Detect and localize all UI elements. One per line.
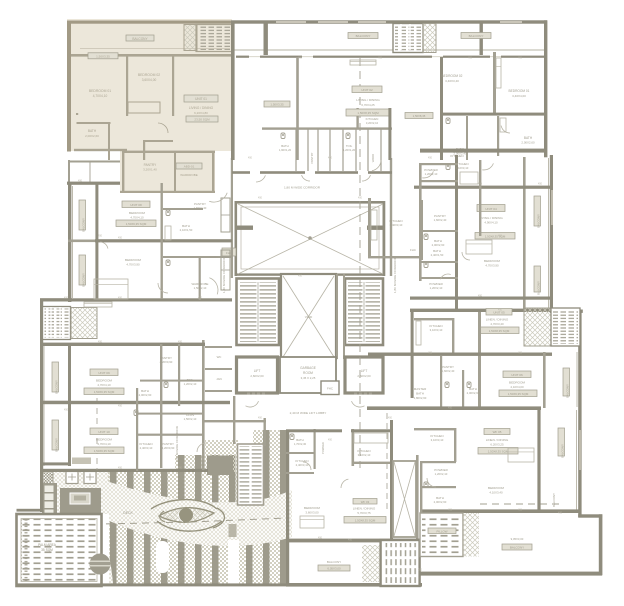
svg-text:BEDROOM: BEDROOM [484, 259, 500, 263]
svg-text:2,40X3,10: 2,40X3,10 [390, 223, 403, 227]
svg-text:BALCONY: BALCONY [54, 438, 58, 452]
svg-text:450: 450 [118, 297, 123, 300]
svg-text:BEDROOM: BEDROOM [96, 438, 112, 442]
svg-text:BATH: BATH [88, 129, 97, 133]
svg-text:DECK: DECK [123, 511, 133, 515]
svg-text:1,50X3,35: 1,50X3,35 [270, 103, 284, 107]
svg-text:450: 450 [518, 57, 523, 60]
svg-text:450: 450 [498, 235, 503, 238]
svg-text:450: 450 [318, 537, 323, 540]
svg-text:BEDROOM: BEDROOM [125, 258, 141, 262]
svg-text:4,70X3,40: 4,70X3,40 [490, 322, 504, 326]
svg-text:BEDROOM: BEDROOM [96, 379, 112, 383]
svg-text:KITCHEN: KITCHEN [366, 117, 379, 121]
svg-text:BALCONY: BALCONY [565, 384, 569, 398]
svg-text:LINEN / DINING: LINEN / DINING [353, 507, 376, 511]
svg-text:BEDROOM 01: BEDROOM 01 [89, 89, 111, 93]
svg-text:450: 450 [64, 297, 69, 300]
svg-text:WARD: WARD [371, 154, 375, 162]
svg-text:450: 450 [558, 512, 563, 515]
svg-text:BALCONY: BALCONY [81, 218, 85, 232]
svg-text:2,00X2,60: 2,00X2,60 [139, 393, 152, 397]
svg-text:1,20X2,10: 1,20X2,10 [425, 172, 438, 176]
svg-text:UNIT 10: UNIT 10 [98, 430, 110, 434]
svg-text:4,70X4,10: 4,70X4,10 [97, 442, 111, 446]
svg-text:1,80 M WIDE CORRIDOR: 1,80 M WIDE CORRIDOR [284, 186, 321, 190]
svg-text:UNIT 01: UNIT 01 [195, 97, 207, 101]
svg-text:3,10X2,10: 3,10X2,10 [358, 453, 371, 457]
svg-text:BEDROOM: BEDROOM [129, 211, 145, 215]
svg-text:1,80 M WIDE CORRIDOR: 1,80 M WIDE CORRIDOR [175, 425, 179, 462]
svg-text:1,80X2,60: 1,80X2,60 [414, 396, 427, 400]
svg-text:VOID: VOID [305, 315, 313, 319]
svg-text:LIFT: LIFT [254, 369, 261, 373]
svg-text:WC: WC [217, 355, 222, 359]
svg-text:450: 450 [98, 235, 103, 238]
svg-text:3,10X3,10: 3,10X3,10 [456, 166, 469, 170]
svg-text:1,50X2,10: 1,50X2,10 [184, 417, 197, 421]
svg-text:2,00X2,60: 2,00X2,60 [85, 134, 99, 138]
svg-text:450: 450 [118, 405, 123, 408]
svg-text:450: 450 [518, 352, 523, 355]
svg-text:PANTRY: PANTRY [310, 152, 314, 163]
svg-text:3,60X3,00: 3,60X3,00 [305, 511, 319, 515]
svg-text:450: 450 [118, 467, 123, 470]
svg-text:2,00X2,60: 2,00X2,60 [467, 391, 480, 395]
svg-text:2,00X2,60: 2,00X2,60 [432, 243, 445, 247]
svg-text:6,05X3,00: 6,05X3,00 [327, 567, 341, 571]
svg-text:BALCONY: BALCONY [469, 34, 484, 38]
svg-text:BATH: BATH [296, 438, 304, 442]
svg-text:MASTER: MASTER [414, 387, 427, 391]
svg-text:LIVING / DINING: LIVING / DINING [479, 216, 503, 220]
svg-text:WF 03: WF 03 [361, 500, 370, 504]
svg-text:450: 450 [448, 509, 453, 512]
svg-text:450: 450 [538, 183, 543, 186]
svg-text:FHC: FHC [410, 248, 416, 252]
svg-text:450: 450 [428, 157, 433, 160]
svg-text:2,10X1,50: 2,10X1,50 [180, 228, 193, 232]
svg-text:450: 450 [388, 417, 393, 420]
svg-text:2,40X1,50: 2,40X1,50 [431, 253, 444, 257]
svg-text:450: 450 [248, 157, 253, 160]
svg-text:450: 450 [378, 57, 383, 60]
svg-text:450: 450 [518, 509, 523, 512]
svg-text:4,10X4,00: 4,10X4,00 [510, 385, 524, 389]
svg-text:UNIT 04: UNIT 04 [485, 207, 497, 211]
svg-text:JAN: JAN [216, 377, 221, 381]
svg-text:1,50X8,35 SQM: 1,50X8,35 SQM [488, 449, 509, 453]
svg-text:450: 450 [178, 467, 183, 470]
svg-text:PILLOW: PILLOW [437, 529, 448, 533]
svg-text:BATH: BATH [524, 136, 533, 140]
svg-text:2,00X2,60: 2,00X2,60 [521, 141, 535, 145]
svg-text:1,50X6,35 SQM: 1,50X6,35 SQM [126, 222, 147, 226]
svg-text:23,50 SQM: 23,50 SQM [194, 118, 210, 122]
svg-text:BALCONY: BALCONY [327, 560, 341, 564]
svg-text:450: 450 [468, 57, 473, 60]
svg-text:450: 450 [478, 183, 483, 186]
svg-text:4,70X3,90: 4,70X3,90 [126, 263, 140, 267]
svg-text:450: 450 [428, 352, 433, 355]
svg-text:1,50X8,35: 1,50X8,35 [413, 114, 426, 118]
svg-text:450: 450 [78, 180, 83, 183]
svg-text:1,50X6,35 SQM: 1,50X6,35 SQM [94, 449, 115, 453]
svg-text:TOIL: TOIL [346, 144, 353, 148]
svg-text:BALCONY: BALCONY [560, 444, 564, 458]
svg-text:1,80 M WIDE CORRIDOR: 1,80 M WIDE CORRIDOR [393, 256, 397, 293]
svg-text:1,60X2,40: 1,60X2,40 [442, 369, 455, 373]
svg-text:BEDROOM: BEDROOM [488, 486, 504, 490]
svg-text:BALCONY: BALCONY [552, 493, 556, 507]
svg-text:450: 450 [348, 539, 353, 542]
svg-text:LINEN / DINING: LINEN / DINING [486, 438, 509, 442]
svg-text:BEDROOM 02: BEDROOM 02 [442, 74, 463, 78]
svg-text:1,20X1,20: 1,20X1,20 [343, 148, 356, 152]
svg-text:WARDROBE: WARDROBE [180, 173, 198, 177]
svg-text:LIVING / DINING: LIVING / DINING [189, 106, 214, 110]
svg-text:1,60X2,40: 1,60X2,40 [434, 218, 447, 222]
svg-text:LIFT: LIFT [361, 369, 368, 373]
svg-text:1,80 M WIDE CORRIDOR: 1,80 M WIDE CORRIDOR [222, 256, 226, 293]
svg-text:ROOM: ROOM [303, 371, 313, 375]
svg-text:UNIT 02: UNIT 02 [361, 88, 373, 92]
svg-text:BALCONY: BALCONY [510, 546, 524, 550]
svg-text:1,50X8,35 SQM: 1,50X8,35 SQM [355, 518, 376, 522]
svg-text:450: 450 [64, 409, 69, 412]
svg-text:PANTRY: PANTRY [144, 163, 158, 167]
svg-text:450: 450 [358, 197, 363, 200]
svg-text:4,70X4,10: 4,70X4,10 [130, 216, 144, 220]
svg-text:3,20X2,10: 3,20X2,10 [366, 121, 379, 125]
svg-text:BEDROOM: BEDROOM [509, 381, 525, 385]
svg-text:LIVING / DINING: LIVING / DINING [356, 98, 380, 102]
svg-text:4,20X0,90: 4,20X0,90 [160, 360, 173, 364]
svg-text:450: 450 [418, 569, 423, 572]
svg-text:3,10X3,10: 3,10X3,10 [430, 328, 443, 332]
svg-text:1,50X6,35 SQM: 1,50X6,35 SQM [94, 390, 115, 394]
svg-text:BALCONY: BALCONY [356, 34, 371, 38]
svg-text:BEDROOM 02: BEDROOM 02 [138, 73, 160, 77]
svg-text:3,60X4,00: 3,60X4,00 [142, 78, 157, 82]
svg-text:2,40X3,10: 2,40X3,10 [296, 463, 309, 467]
svg-text:35 SQM: 35 SQM [41, 548, 53, 552]
svg-text:6,70X4,25: 6,70X4,25 [361, 103, 375, 107]
svg-text:450: 450 [498, 309, 503, 312]
svg-text:1,60X2,40: 1,60X2,40 [194, 206, 207, 210]
svg-text:3,20X1,40: 3,20X1,40 [143, 168, 157, 172]
svg-text:UNIT 06: UNIT 06 [511, 373, 523, 377]
svg-text:3,45 X 2,25: 3,45 X 2,25 [301, 376, 316, 380]
svg-text:2,40 M WIDE LIFT LOBBY: 2,40 M WIDE LIFT LOBBY [290, 411, 327, 415]
svg-text:450: 450 [328, 157, 333, 160]
svg-text:450: 450 [298, 57, 303, 60]
svg-text:1,50X8,35 SQM: 1,50X8,35 SQM [485, 234, 506, 238]
svg-text:BEDROOM 01: BEDROOM 01 [509, 89, 530, 93]
svg-text:4,90X4,10: 4,90X4,10 [484, 221, 498, 225]
svg-text:1,50X8,35 SQM: 1,50X8,35 SQM [357, 111, 379, 115]
svg-text:6,20X3,25: 6,20X3,25 [490, 443, 504, 447]
svg-text:450: 450 [258, 197, 263, 200]
svg-text:POWDER: POWDER [321, 442, 325, 454]
svg-text:ABD-01: ABD-01 [184, 165, 195, 169]
svg-text:6,20X4,80: 6,20X4,80 [194, 111, 208, 115]
svg-text:LINEN / DINING: LINEN / DINING [486, 318, 509, 322]
svg-text:WARD: WARD [210, 255, 219, 259]
svg-text:450: 450 [478, 295, 483, 298]
svg-text:450: 450 [98, 341, 103, 344]
svg-text:2,60X2,60: 2,60X2,60 [357, 374, 371, 378]
svg-text:450: 450 [178, 341, 183, 344]
svg-text:3,10X3,10: 3,10X3,10 [431, 438, 444, 442]
svg-text:BALCONY: BALCONY [54, 380, 58, 394]
svg-text:4,20X0,90: 4,20X0,90 [162, 446, 175, 450]
svg-text:WF 05: WF 05 [493, 430, 502, 434]
svg-text:450: 450 [258, 417, 263, 420]
svg-text:450: 450 [298, 275, 303, 278]
svg-text:4,10X3,40: 4,10X3,40 [489, 491, 503, 495]
svg-text:1,50X8,35 SQM: 1,50X8,35 SQM [489, 329, 510, 333]
svg-text:3,40X3,40: 3,40X3,40 [445, 79, 459, 83]
svg-text:UNIT 09: UNIT 09 [98, 371, 110, 375]
svg-text:4,70X3,90: 4,70X3,90 [485, 264, 499, 268]
svg-text:BALCONY: BALCONY [81, 273, 85, 287]
svg-text:3,40X4,00: 3,40X4,00 [512, 94, 526, 98]
svg-text:4,70X4,10: 4,70X4,10 [97, 383, 111, 387]
svg-text:9,05X3,00: 9,05X3,00 [511, 537, 524, 541]
svg-text:450: 450 [118, 237, 123, 240]
svg-text:1,50X3,35: 1,50X3,35 [96, 55, 110, 59]
svg-text:BALCONY: BALCONY [536, 214, 540, 228]
svg-text:BALCONY: BALCONY [132, 37, 148, 41]
svg-text:450: 450 [198, 297, 203, 300]
svg-text:2,40X3,10: 2,40X3,10 [140, 446, 153, 450]
svg-text:1,90X1,20: 1,90X1,20 [279, 148, 292, 152]
svg-text:2,60X2,60: 2,60X2,60 [250, 374, 264, 378]
svg-text:5,70X3,75: 5,70X3,75 [357, 511, 371, 515]
svg-text:1,20X2,10: 1,20X2,10 [184, 382, 197, 386]
svg-text:1,20X2,10: 1,20X2,10 [430, 286, 443, 290]
svg-text:BALCONY: BALCONY [536, 281, 540, 295]
svg-text:GARBAGE: GARBAGE [300, 366, 316, 370]
svg-text:UNIT 08: UNIT 08 [130, 203, 142, 207]
svg-text:1,70X2,30: 1,70X2,30 [294, 442, 307, 446]
svg-text:1,50X6,35 SQM: 1,50X6,35 SQM [508, 392, 529, 396]
svg-text:BATH: BATH [416, 392, 424, 396]
svg-text:4,70X4,10: 4,70X4,10 [93, 94, 108, 98]
svg-text:BATH: BATH [281, 144, 289, 148]
svg-text:FHC: FHC [327, 387, 333, 391]
svg-text:450: 450 [328, 439, 333, 442]
svg-text:BEDROOM: BEDROOM [304, 506, 320, 510]
svg-text:2,00X2,60: 2,00X2,60 [434, 500, 447, 504]
svg-text:PALM AREA: PALM AREA [38, 543, 57, 547]
svg-text:450: 450 [448, 407, 453, 410]
svg-text:1,20X2,10: 1,20X2,10 [435, 472, 448, 476]
